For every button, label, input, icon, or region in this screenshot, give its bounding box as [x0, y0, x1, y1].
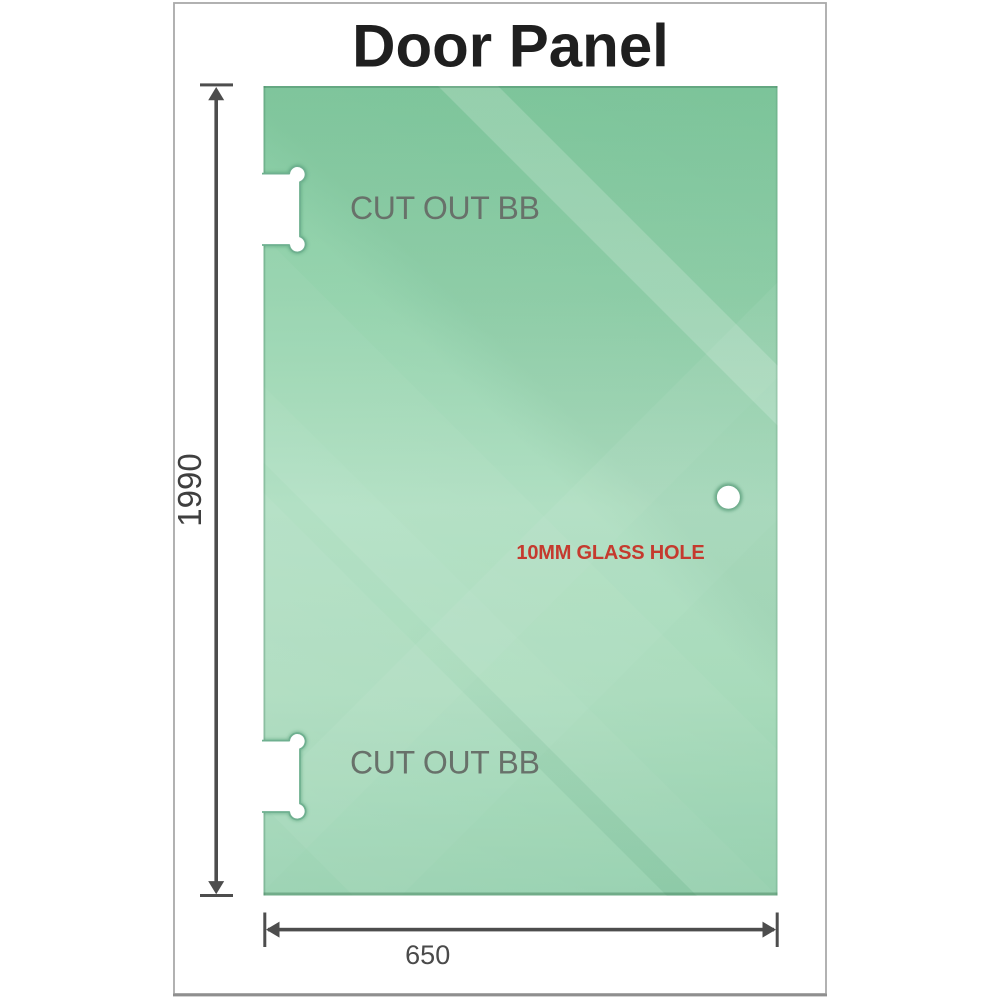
- svg-text:650: 650: [405, 940, 450, 970]
- svg-text:1990: 1990: [171, 453, 208, 526]
- svg-text:10MM GLASS HOLE: 10MM GLASS HOLE: [516, 542, 704, 564]
- svg-text:Door Panel: Door Panel: [352, 13, 669, 80]
- svg-text:CUT OUT BB: CUT OUT BB: [350, 745, 540, 781]
- svg-text:CUT OUT BB: CUT OUT BB: [350, 190, 540, 226]
